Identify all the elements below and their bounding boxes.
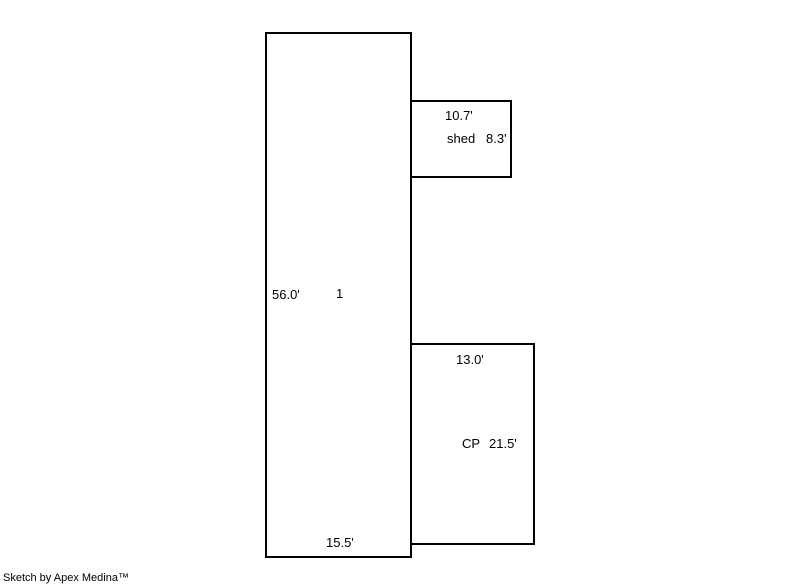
main-width-dimension: 15.5' (326, 536, 354, 549)
shed-width-dimension: 10.7' (445, 109, 473, 122)
carport-area-label: CP (462, 437, 480, 450)
main-height-dimension: 56.0' (272, 288, 300, 301)
shed-height-dimension: 8.3' (486, 132, 507, 145)
sketch-credit: Sketch by Apex Medina™ (3, 573, 129, 584)
carport-width-dimension: 13.0' (456, 353, 484, 366)
sketch-canvas: 56.0' 1 15.5' 10.7' shed 8.3' 13.0' CP 2… (0, 0, 800, 587)
shed-area-label: shed (447, 132, 475, 145)
main-area-id: 1 (336, 287, 343, 300)
carport-height-dimension: 21.5' (489, 437, 517, 450)
